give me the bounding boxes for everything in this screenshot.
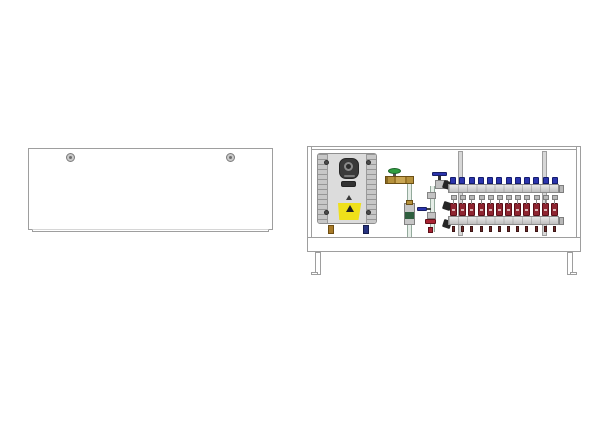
circuit-outlet — [461, 226, 464, 232]
heater-control-panel — [339, 158, 359, 179]
warning-label — [337, 203, 362, 220]
heater-display-screen — [341, 181, 356, 187]
heater-screw — [366, 160, 371, 165]
cabinet-left-foot — [311, 272, 318, 275]
manifold-valve-caps — [450, 177, 558, 184]
flow-meter — [533, 203, 540, 216]
pipe-union-fitting — [427, 212, 436, 219]
flow-meter — [450, 203, 457, 216]
cabinet-top-rail — [307, 146, 581, 150]
valve-cap — [515, 177, 521, 184]
drain-valve-red-handle — [425, 219, 436, 224]
valve-cap — [487, 177, 493, 184]
flow-meter — [523, 203, 530, 216]
valve-cap — [450, 177, 456, 184]
heater-brass-fitting — [328, 225, 334, 234]
circuit-outlet — [507, 226, 510, 232]
flow-meter-sight-glass — [461, 209, 464, 211]
manifold-end-cap — [559, 217, 564, 225]
flow-meter — [551, 203, 558, 216]
valve-cap — [543, 177, 549, 184]
fill-valve-stem — [427, 208, 431, 210]
check-valve — [404, 203, 415, 225]
flow-meter — [478, 203, 485, 216]
heater-screw — [366, 210, 371, 215]
circuit-outlet — [498, 226, 501, 232]
flow-meter-sight-glass — [507, 209, 510, 211]
circuit-outlet — [470, 226, 473, 232]
mixing-valve-green-handle — [388, 168, 401, 174]
flow-meter — [514, 203, 521, 216]
flow-meter-sight-glass — [525, 209, 528, 211]
circuit-outlet — [489, 226, 492, 232]
valve-cap — [533, 177, 539, 184]
circuit-outlet — [480, 226, 483, 232]
cabinet-front-cover — [28, 148, 273, 230]
circuit-outlet-row — [452, 226, 556, 232]
circuit-outlet — [535, 226, 538, 232]
heat-interface-unit — [317, 153, 377, 224]
flow-meter — [496, 203, 503, 216]
valve-cap — [459, 177, 465, 184]
flow-meter — [459, 203, 466, 216]
flow-meter-sight-glass — [489, 209, 492, 211]
illustration-canvas — [0, 0, 600, 424]
flow-meter-sight-glass — [516, 209, 519, 211]
heater-screw — [324, 210, 329, 215]
warning-triangle-icon — [346, 195, 352, 200]
open-manifold-cabinet — [307, 146, 583, 278]
circuit-outlet — [553, 226, 556, 232]
heater-button-slot — [344, 175, 355, 177]
flow-meter-sight-glass — [452, 209, 455, 211]
flow-meter-sight-glass — [544, 209, 547, 211]
check-valve-band — [405, 212, 414, 219]
manifold-end-cap — [559, 185, 564, 193]
pipe-union-fitting — [427, 192, 436, 199]
flow-meter — [542, 203, 549, 216]
heater-blue-fitting — [363, 225, 369, 234]
flow-meter — [487, 203, 494, 216]
heater-dial-icon — [344, 162, 353, 171]
check-valve-nut — [406, 200, 413, 205]
circuit-outlet — [525, 226, 528, 232]
valve-cap — [524, 177, 530, 184]
valve-cap — [552, 177, 558, 184]
cabinet-bottom-rail — [307, 237, 581, 252]
flow-meter-sight-glass — [480, 209, 483, 211]
flow-meter-row — [450, 203, 558, 216]
flow-meter-sight-glass — [470, 209, 473, 211]
flow-meter-sight-glass — [553, 209, 556, 211]
drain-valve-spout — [428, 227, 433, 233]
heater-screw — [324, 160, 329, 165]
flow-meter-sight-glass — [535, 209, 538, 211]
flow-meter — [505, 203, 512, 216]
return-manifold-bar — [448, 184, 559, 193]
cover-screw-left — [66, 153, 75, 162]
flow-meter — [468, 203, 475, 216]
cabinet-right-foot — [570, 272, 577, 275]
circuit-outlet — [544, 226, 547, 232]
valve-cap — [506, 177, 512, 184]
flow-meter-sight-glass — [498, 209, 501, 211]
valve-cap — [469, 177, 475, 184]
ball-valve-blue-handle — [432, 172, 447, 176]
supply-manifold-bar — [448, 216, 559, 225]
circuit-outlet — [452, 226, 455, 232]
circuit-outlet — [516, 226, 519, 232]
valve-cap — [478, 177, 484, 184]
cover-screw-right — [226, 153, 235, 162]
valve-cap — [496, 177, 502, 184]
mixing-valve-brass-body — [385, 176, 414, 184]
fill-valve-blue-handle — [417, 207, 427, 211]
cover-bottom-flange — [32, 229, 269, 232]
